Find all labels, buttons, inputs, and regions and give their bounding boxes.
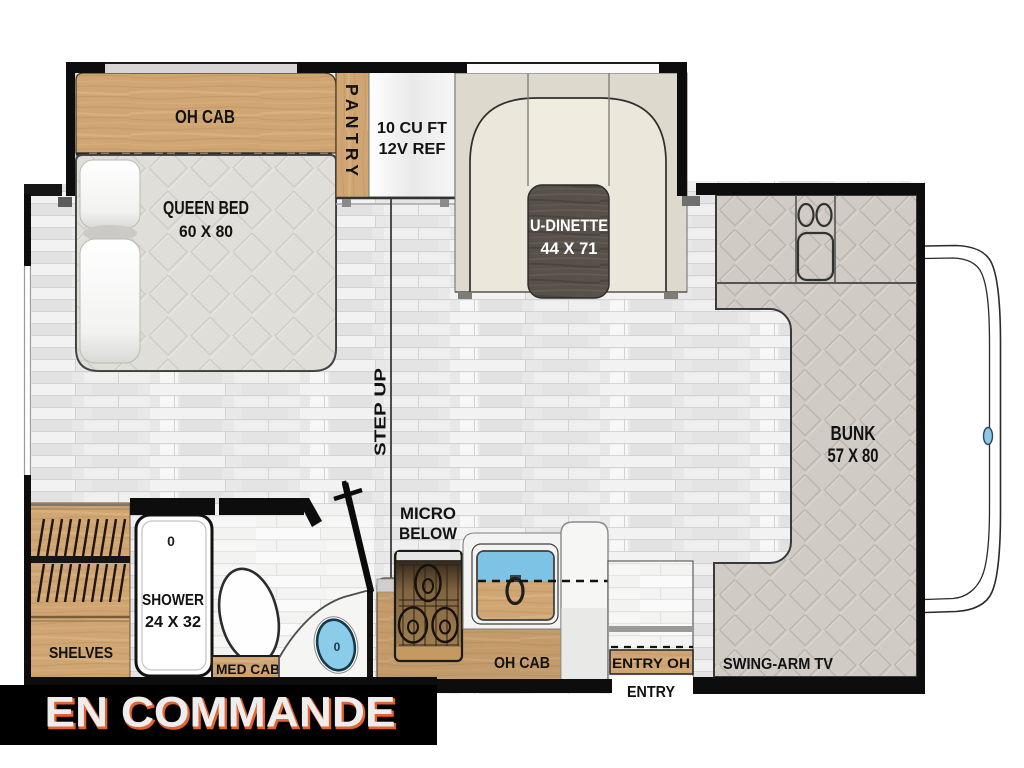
svg-text:SWING-ARM TV: SWING-ARM TV xyxy=(723,656,834,673)
svg-text:MICRO: MICRO xyxy=(400,504,456,523)
svg-text:SHOWER: SHOWER xyxy=(142,592,204,609)
svg-text:12V REF: 12V REF xyxy=(379,141,446,158)
svg-text:EN COMMANDE: EN COMMANDE xyxy=(45,689,396,737)
svg-text:BUNK: BUNK xyxy=(831,423,876,445)
svg-text:24 X 32: 24 X 32 xyxy=(145,614,201,631)
svg-text:OH CAB: OH CAB xyxy=(494,655,550,672)
svg-text:OH CAB: OH CAB xyxy=(175,107,235,127)
svg-text:60 X 80: 60 X 80 xyxy=(179,222,233,241)
svg-text:0: 0 xyxy=(167,533,175,549)
svg-text:ENTRY OH: ENTRY OH xyxy=(612,655,690,671)
svg-text:0: 0 xyxy=(334,640,341,654)
svg-text:U-DINETTE: U-DINETTE xyxy=(530,217,608,235)
svg-text:SHELVES: SHELVES xyxy=(49,645,113,662)
svg-text:STEP UP: STEP UP xyxy=(373,368,390,456)
svg-text:10 CU FT: 10 CU FT xyxy=(377,120,447,137)
svg-text:57 X 80: 57 X 80 xyxy=(828,446,879,467)
svg-text:BELOW: BELOW xyxy=(399,524,458,543)
svg-text:MED CAB: MED CAB xyxy=(216,662,280,677)
svg-text:44 X 71: 44 X 71 xyxy=(541,240,598,258)
svg-text:QUEEN BED: QUEEN BED xyxy=(163,198,249,218)
svg-text:ENTRY: ENTRY xyxy=(627,684,676,701)
